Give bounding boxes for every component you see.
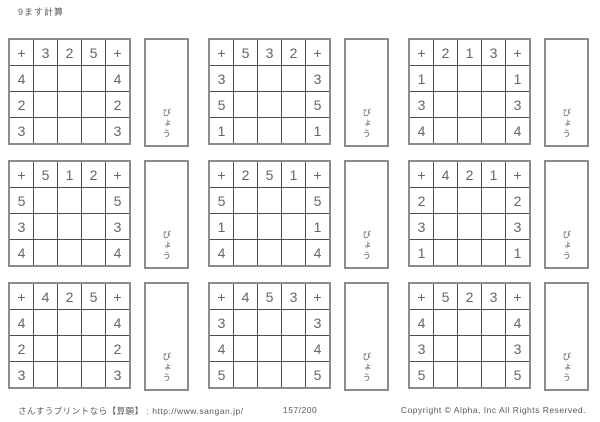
row-addend-cell: 4 (9, 310, 34, 336)
answer-cell (58, 214, 82, 240)
answer-cell (434, 240, 458, 267)
seconds-label: びょう (362, 108, 371, 140)
row-addend-cell: 2 (409, 188, 434, 214)
seconds-box: びょう (144, 282, 189, 391)
answer-cell (34, 240, 58, 267)
calc-row: 55 (209, 362, 330, 389)
masu-block: +532+335511びょう (208, 38, 391, 147)
calc-row: 33 (209, 310, 330, 336)
row-addend-repeat-cell: 5 (306, 188, 331, 214)
calc-row: 55 (209, 188, 330, 214)
answer-cell (458, 336, 482, 362)
row-addend-repeat-cell: 2 (506, 188, 531, 214)
column-addend-cell: 4 (434, 161, 458, 188)
row-addend-repeat-cell: 2 (106, 92, 131, 118)
seconds-box: びょう (344, 38, 389, 147)
header-row: +251+ (209, 161, 330, 188)
column-addend-cell: 2 (434, 39, 458, 66)
row-addend-repeat-cell: 3 (306, 310, 331, 336)
row-addend-repeat-cell: 5 (306, 92, 331, 118)
seconds-box: びょう (344, 282, 389, 391)
row-addend-repeat-cell: 3 (506, 92, 531, 118)
row-addend-cell: 3 (9, 362, 34, 389)
answer-cell (234, 188, 258, 214)
header-row: +453+ (209, 283, 330, 310)
masu-block: +213+113344びょう (408, 38, 591, 147)
answer-cell (258, 240, 282, 267)
masu-grid: +325+442233 (8, 38, 131, 145)
answer-cell (82, 188, 106, 214)
calc-row: 44 (209, 240, 330, 267)
operator-cell: + (506, 161, 531, 188)
answer-cell (434, 66, 458, 92)
column-addend-cell: 2 (234, 161, 258, 188)
row-addend-cell: 4 (409, 118, 434, 145)
answer-cell (458, 118, 482, 145)
operator-cell: + (106, 283, 131, 310)
row-addend-cell: 3 (209, 66, 234, 92)
row-addend-cell: 5 (9, 188, 34, 214)
row-addend-cell: 1 (409, 240, 434, 267)
answer-cell (82, 214, 106, 240)
answer-cell (234, 118, 258, 145)
answer-cell (482, 92, 506, 118)
calc-row: 22 (9, 92, 130, 118)
calc-row: 33 (9, 362, 130, 389)
answer-cell (458, 214, 482, 240)
seconds-label: びょう (162, 108, 171, 140)
header-row: +512+ (9, 161, 130, 188)
masu-block: +523+443355びょう (408, 282, 591, 391)
answer-cell (458, 92, 482, 118)
answer-cell (282, 92, 306, 118)
answer-cell (458, 188, 482, 214)
column-addend-cell: 2 (282, 39, 306, 66)
answer-cell (234, 336, 258, 362)
footer-page-number: 157/200 (283, 405, 317, 415)
header-row: +421+ (409, 161, 530, 188)
column-addend-cell: 2 (458, 283, 482, 310)
masu-grid: +421+223311 (408, 160, 531, 267)
header-row: +523+ (409, 283, 530, 310)
calc-row: 33 (9, 214, 130, 240)
calc-row: 55 (409, 362, 530, 389)
calc-row: 33 (409, 92, 530, 118)
operator-cell: + (306, 161, 331, 188)
row-addend-cell: 3 (409, 336, 434, 362)
column-addend-cell: 3 (34, 39, 58, 66)
operator-cell: + (9, 39, 34, 66)
operator-cell: + (209, 283, 234, 310)
seconds-label: びょう (562, 108, 571, 140)
masu-block: +512+553344びょう (8, 160, 191, 269)
answer-cell (434, 362, 458, 389)
column-addend-cell: 5 (82, 39, 106, 66)
calc-row: 33 (409, 214, 530, 240)
row-addend-cell: 1 (409, 66, 434, 92)
answer-cell (34, 92, 58, 118)
answer-cell (434, 214, 458, 240)
row-addend-repeat-cell: 5 (106, 188, 131, 214)
row-addend-repeat-cell: 3 (106, 214, 131, 240)
row-addend-cell: 5 (409, 362, 434, 389)
answer-cell (482, 118, 506, 145)
row-addend-cell: 4 (209, 336, 234, 362)
row-addend-repeat-cell: 3 (106, 362, 131, 389)
row-addend-repeat-cell: 1 (506, 240, 531, 267)
page-title: 9ます計算 (18, 5, 64, 18)
column-addend-cell: 2 (458, 161, 482, 188)
footer: さんすうプリントなら【算願】 : http://www.sangan.jp/ 1… (0, 405, 600, 419)
calc-row: 44 (9, 310, 130, 336)
masu-grid: +251+551144 (208, 160, 331, 267)
answer-cell (34, 188, 58, 214)
answer-cell (234, 214, 258, 240)
answer-cell (82, 240, 106, 267)
row-addend-cell: 3 (409, 214, 434, 240)
answer-cell (82, 362, 106, 389)
row-addend-cell: 1 (209, 118, 234, 145)
column-addend-cell: 1 (282, 161, 306, 188)
answer-cell (258, 362, 282, 389)
masu-grid: +425+442233 (8, 282, 131, 389)
operator-cell: + (409, 39, 434, 66)
masu-grid: +213+113344 (408, 38, 531, 145)
column-addend-cell: 2 (82, 161, 106, 188)
answer-cell (282, 118, 306, 145)
column-addend-cell: 4 (234, 283, 258, 310)
column-addend-cell: 1 (458, 39, 482, 66)
calc-row: 22 (409, 188, 530, 214)
operator-cell: + (106, 161, 131, 188)
row-addend-repeat-cell: 4 (106, 310, 131, 336)
row-addend-cell: 4 (9, 240, 34, 267)
answer-cell (482, 310, 506, 336)
worksheet-blocks: +325+442233びょう+532+335511びょう+213+113344び… (8, 38, 591, 391)
column-addend-cell: 4 (34, 283, 58, 310)
answer-cell (82, 336, 106, 362)
answer-cell (482, 240, 506, 267)
answer-cell (34, 310, 58, 336)
calc-row: 55 (9, 188, 130, 214)
calc-row: 55 (209, 92, 330, 118)
answer-cell (258, 188, 282, 214)
row-addend-repeat-cell: 4 (106, 66, 131, 92)
masu-grid: +453+334455 (208, 282, 331, 389)
column-addend-cell: 5 (258, 283, 282, 310)
answer-cell (234, 310, 258, 336)
row-addend-cell: 2 (9, 336, 34, 362)
operator-cell: + (409, 161, 434, 188)
seconds-label: びょう (162, 230, 171, 262)
row-addend-cell: 4 (209, 240, 234, 267)
column-addend-cell: 3 (258, 39, 282, 66)
row-addend-repeat-cell: 3 (106, 118, 131, 145)
answer-cell (34, 214, 58, 240)
calc-row: 11 (409, 240, 530, 267)
answer-cell (58, 92, 82, 118)
row-addend-repeat-cell: 4 (306, 336, 331, 362)
calc-row: 44 (409, 310, 530, 336)
row-addend-cell: 3 (9, 118, 34, 145)
row-addend-repeat-cell: 5 (306, 362, 331, 389)
row-addend-repeat-cell: 5 (506, 362, 531, 389)
answer-cell (434, 188, 458, 214)
calc-row: 11 (409, 66, 530, 92)
answer-cell (282, 188, 306, 214)
answer-cell (282, 240, 306, 267)
answer-cell (258, 118, 282, 145)
calc-row: 22 (9, 336, 130, 362)
seconds-label: びょう (562, 230, 571, 262)
column-addend-cell: 3 (482, 283, 506, 310)
answer-cell (58, 310, 82, 336)
answer-cell (258, 214, 282, 240)
answer-cell (234, 92, 258, 118)
calc-row: 44 (9, 240, 130, 267)
calc-row: 33 (209, 66, 330, 92)
header-row: +532+ (209, 39, 330, 66)
column-addend-cell: 5 (82, 283, 106, 310)
answer-cell (58, 362, 82, 389)
answer-cell (282, 362, 306, 389)
masu-block: +325+442233びょう (8, 38, 191, 147)
answer-cell (258, 336, 282, 362)
column-addend-cell: 2 (58, 39, 82, 66)
masu-block: +421+223311びょう (408, 160, 591, 269)
answer-cell (482, 336, 506, 362)
operator-cell: + (506, 283, 531, 310)
header-row: +325+ (9, 39, 130, 66)
masu-grid: +512+553344 (8, 160, 131, 267)
row-addend-repeat-cell: 1 (306, 118, 331, 145)
seconds-box: びょう (144, 38, 189, 147)
row-addend-repeat-cell: 2 (106, 336, 131, 362)
answer-cell (58, 240, 82, 267)
masu-block: +251+551144びょう (208, 160, 391, 269)
answer-cell (58, 66, 82, 92)
answer-cell (34, 66, 58, 92)
seconds-label: びょう (362, 230, 371, 262)
seconds-label: びょう (362, 352, 371, 384)
operator-cell: + (9, 283, 34, 310)
calc-row: 44 (9, 66, 130, 92)
footer-copyright: Copyright © Alpha, Inc All Rights Reserv… (401, 405, 586, 415)
answer-cell (434, 118, 458, 145)
row-addend-cell: 3 (409, 92, 434, 118)
answer-cell (482, 66, 506, 92)
answer-cell (458, 240, 482, 267)
answer-cell (434, 336, 458, 362)
answer-cell (82, 310, 106, 336)
answer-cell (434, 310, 458, 336)
row-addend-cell: 1 (209, 214, 234, 240)
row-addend-cell: 4 (9, 66, 34, 92)
answer-cell (82, 66, 106, 92)
operator-cell: + (106, 39, 131, 66)
answer-cell (34, 118, 58, 145)
masu-grid: +532+335511 (208, 38, 331, 145)
answer-cell (258, 310, 282, 336)
masu-block: +453+334455びょう (208, 282, 391, 391)
column-addend-cell: 3 (482, 39, 506, 66)
seconds-box: びょう (544, 160, 589, 269)
answer-cell (234, 362, 258, 389)
calc-row: 33 (409, 336, 530, 362)
row-addend-cell: 2 (9, 92, 34, 118)
answer-cell (82, 92, 106, 118)
answer-cell (258, 66, 282, 92)
row-addend-repeat-cell: 3 (306, 66, 331, 92)
answer-cell (34, 362, 58, 389)
row-addend-repeat-cell: 4 (106, 240, 131, 267)
operator-cell: + (306, 39, 331, 66)
header-row: +425+ (9, 283, 130, 310)
seconds-box: びょう (144, 160, 189, 269)
row-addend-cell: 3 (209, 310, 234, 336)
answer-cell (234, 240, 258, 267)
answer-cell (282, 214, 306, 240)
operator-cell: + (506, 39, 531, 66)
column-addend-cell: 3 (282, 283, 306, 310)
operator-cell: + (9, 161, 34, 188)
footer-site-text: さんすうプリントなら【算願】 : http://www.sangan.jp/ (18, 405, 244, 417)
operator-cell: + (409, 283, 434, 310)
row-addend-cell: 5 (209, 188, 234, 214)
row-addend-repeat-cell: 4 (306, 240, 331, 267)
masu-block: +425+442233びょう (8, 282, 191, 391)
operator-cell: + (209, 39, 234, 66)
column-addend-cell: 5 (234, 39, 258, 66)
answer-cell (58, 336, 82, 362)
seconds-label: びょう (162, 352, 171, 384)
answer-cell (282, 66, 306, 92)
seconds-box: びょう (544, 282, 589, 391)
masu-grid: +523+443355 (408, 282, 531, 389)
column-addend-cell: 1 (482, 161, 506, 188)
column-addend-cell: 5 (34, 161, 58, 188)
row-addend-repeat-cell: 1 (306, 214, 331, 240)
seconds-box: びょう (544, 38, 589, 147)
answer-cell (482, 188, 506, 214)
answer-cell (258, 92, 282, 118)
answer-cell (458, 66, 482, 92)
answer-cell (282, 310, 306, 336)
row-addend-repeat-cell: 3 (506, 214, 531, 240)
answer-cell (82, 118, 106, 145)
row-addend-cell: 5 (209, 362, 234, 389)
answer-cell (234, 66, 258, 92)
answer-cell (482, 214, 506, 240)
row-addend-repeat-cell: 4 (506, 118, 531, 145)
row-addend-cell: 4 (409, 310, 434, 336)
calc-row: 11 (209, 118, 330, 145)
row-addend-repeat-cell: 3 (506, 336, 531, 362)
calc-row: 44 (409, 118, 530, 145)
operator-cell: + (209, 161, 234, 188)
answer-cell (482, 362, 506, 389)
header-row: +213+ (409, 39, 530, 66)
row-addend-repeat-cell: 1 (506, 66, 531, 92)
answer-cell (434, 92, 458, 118)
calc-row: 33 (9, 118, 130, 145)
answer-cell (458, 362, 482, 389)
answer-cell (458, 310, 482, 336)
seconds-label: びょう (562, 352, 571, 384)
answer-cell (282, 336, 306, 362)
column-addend-cell: 2 (58, 283, 82, 310)
column-addend-cell: 1 (58, 161, 82, 188)
calc-row: 11 (209, 214, 330, 240)
column-addend-cell: 5 (434, 283, 458, 310)
row-addend-cell: 3 (9, 214, 34, 240)
answer-cell (58, 188, 82, 214)
row-addend-cell: 5 (209, 92, 234, 118)
column-addend-cell: 5 (258, 161, 282, 188)
operator-cell: + (306, 283, 331, 310)
calc-row: 44 (209, 336, 330, 362)
row-addend-repeat-cell: 4 (506, 310, 531, 336)
seconds-box: びょう (344, 160, 389, 269)
answer-cell (34, 336, 58, 362)
answer-cell (58, 118, 82, 145)
